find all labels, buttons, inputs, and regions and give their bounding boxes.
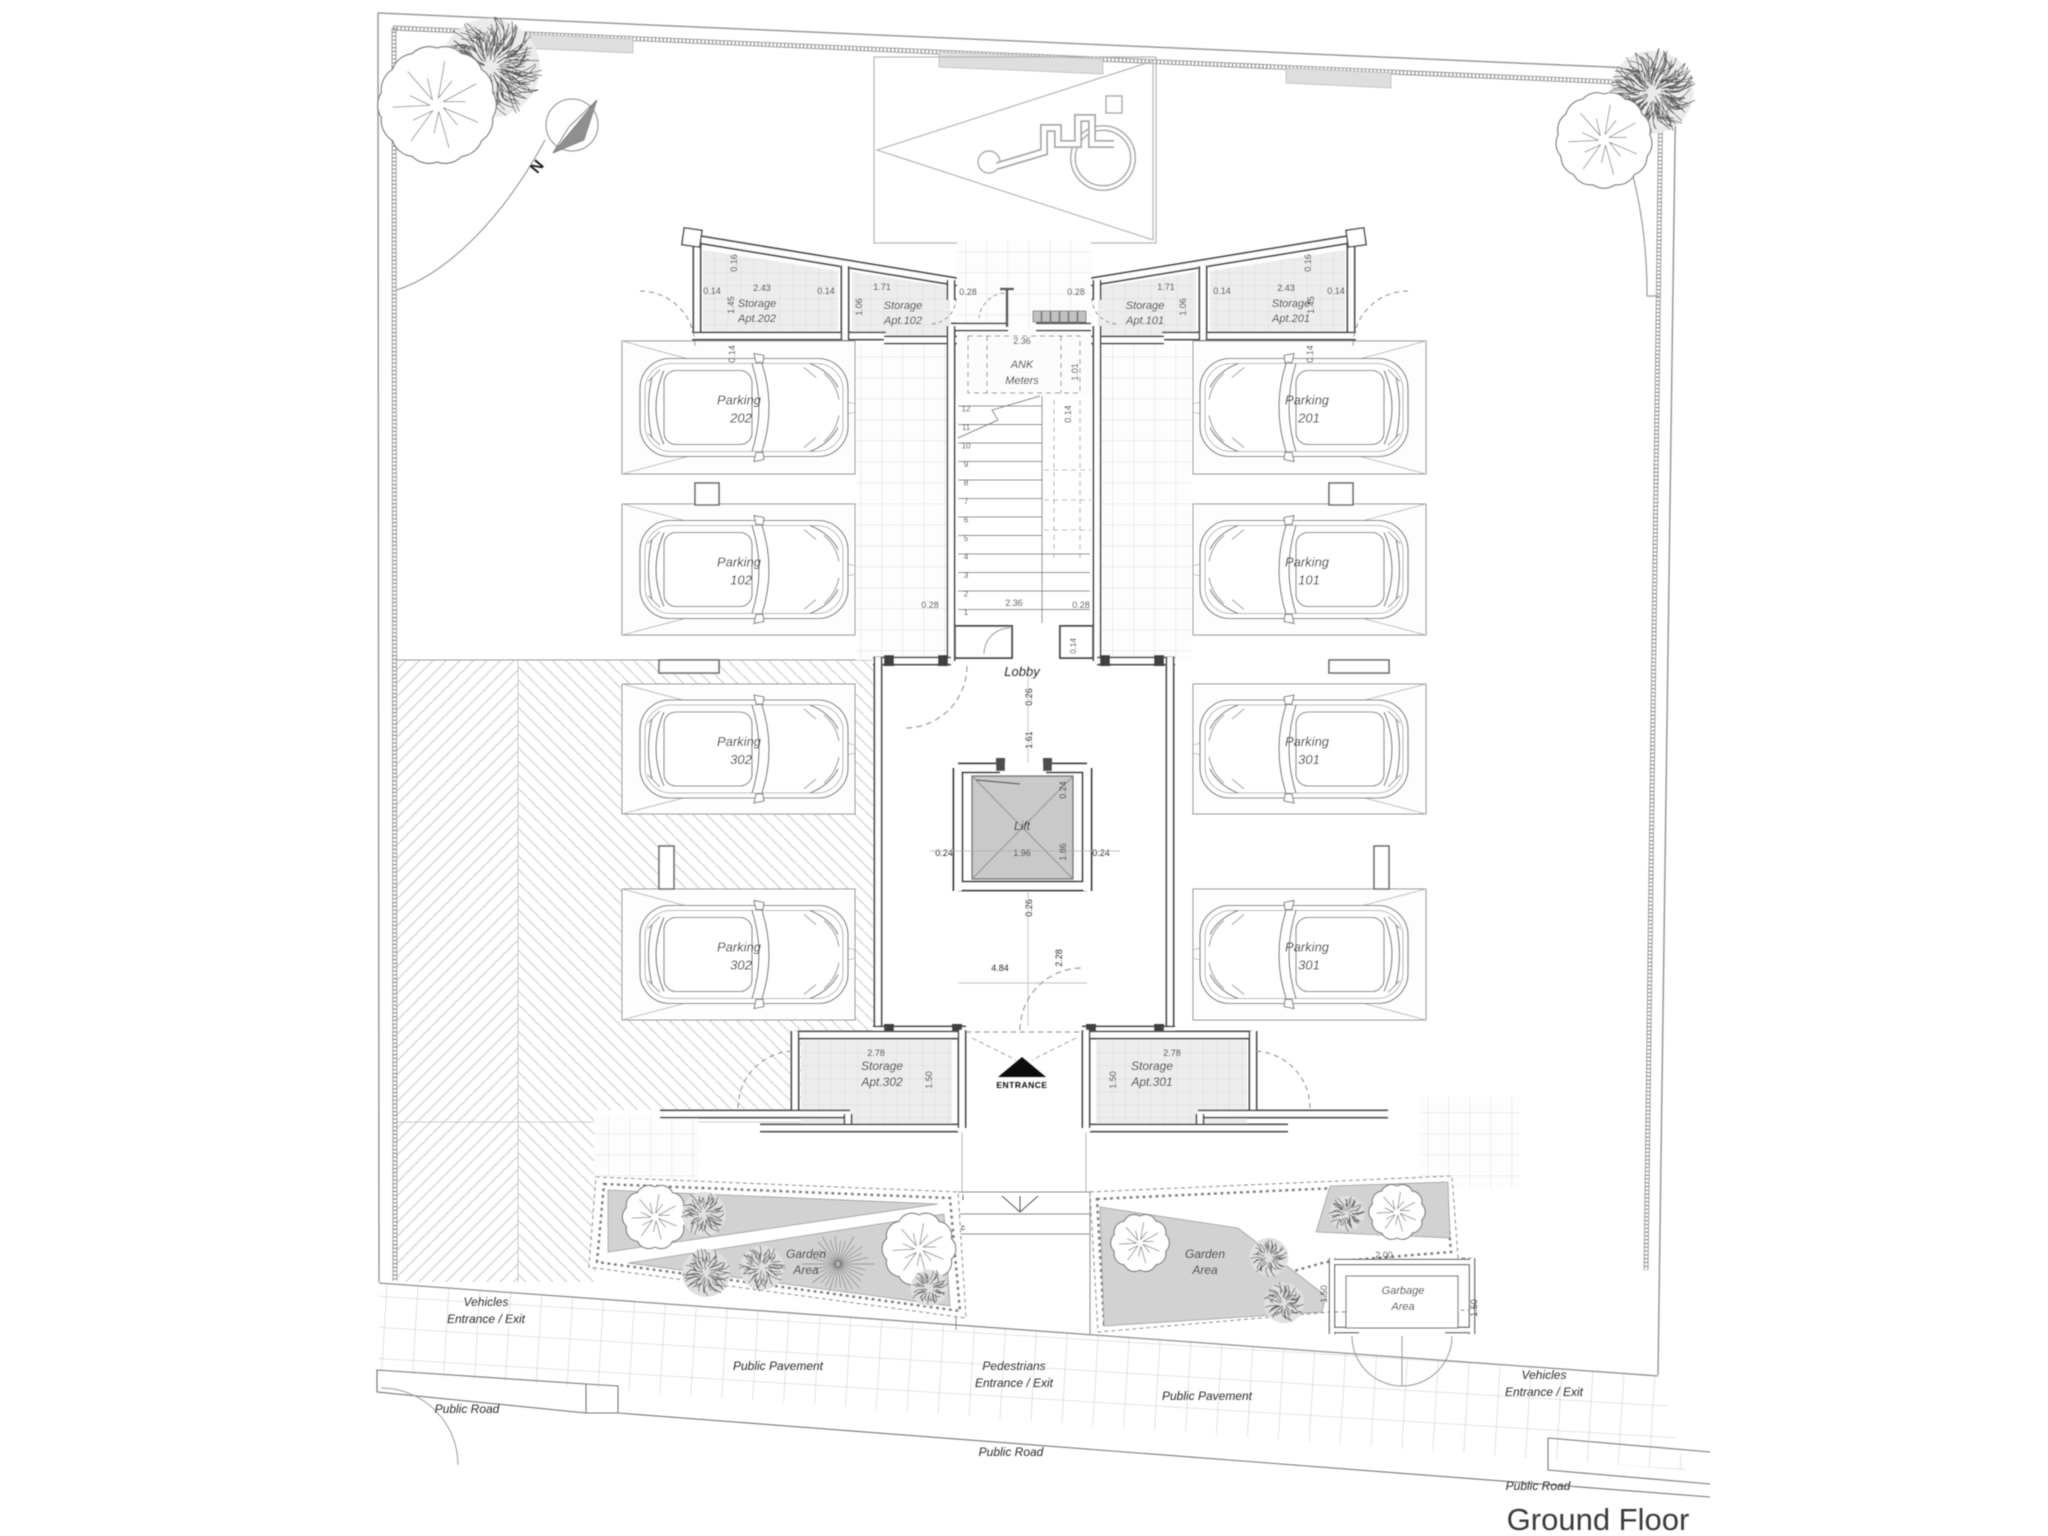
- svg-text:Garbage: Garbage: [1382, 1285, 1425, 1297]
- svg-text:0.16: 0.16: [1303, 254, 1313, 272]
- svg-text:7: 7: [964, 497, 969, 506]
- svg-text:Public Road: Public Road: [979, 1445, 1044, 1459]
- svg-text:0.14: 0.14: [727, 345, 737, 363]
- svg-text:5: 5: [964, 534, 969, 543]
- svg-text:1.45: 1.45: [726, 296, 736, 314]
- svg-text:202: 202: [729, 411, 752, 426]
- svg-text:Entrance / Exit: Entrance / Exit: [447, 1312, 526, 1326]
- svg-text:0.14: 0.14: [1327, 286, 1345, 296]
- svg-text:1.61: 1.61: [1024, 731, 1034, 749]
- svg-text:Storage: Storage: [1272, 298, 1311, 310]
- svg-text:301: 301: [1298, 752, 1320, 767]
- svg-text:Pedestrians: Pedestrians: [982, 1359, 1045, 1373]
- svg-text:Public Pavement: Public Pavement: [1162, 1389, 1253, 1403]
- svg-text:1.50: 1.50: [1108, 1071, 1118, 1089]
- svg-text:Apt.102: Apt.102: [883, 315, 922, 327]
- svg-text:Meters: Meters: [1005, 375, 1039, 387]
- svg-text:Parking: Parking: [717, 940, 762, 955]
- svg-text:101: 101: [1298, 573, 1320, 588]
- svg-text:2.78: 2.78: [1163, 1048, 1181, 1058]
- svg-text:1.45: 1.45: [1306, 296, 1316, 314]
- svg-text:12: 12: [962, 405, 971, 414]
- svg-text:i: i: [962, 1193, 964, 1202]
- svg-text:Parking: Parking: [717, 393, 762, 408]
- svg-text:0.24: 0.24: [935, 848, 953, 858]
- svg-text:1: 1: [964, 608, 969, 617]
- svg-text:102: 102: [730, 573, 752, 588]
- svg-text:0.24: 0.24: [1058, 781, 1068, 799]
- svg-text:Parking: Parking: [1285, 555, 1330, 570]
- svg-text:Vehicles: Vehicles: [1522, 1368, 1567, 1382]
- svg-text:Apt.301: Apt.301: [1130, 1075, 1172, 1089]
- svg-text:0.16: 0.16: [729, 254, 739, 272]
- svg-text:302: 302: [730, 752, 752, 767]
- svg-text:0.26: 0.26: [1024, 688, 1034, 706]
- svg-text:Lobby: Lobby: [1004, 664, 1041, 679]
- svg-text:11: 11: [962, 423, 971, 432]
- svg-text:0.14: 0.14: [1063, 405, 1073, 423]
- svg-text:0.14: 0.14: [703, 286, 721, 296]
- svg-text:301: 301: [1298, 958, 1320, 973]
- svg-text:0.14: 0.14: [817, 286, 835, 296]
- svg-text:Garden: Garden: [1185, 1247, 1225, 1261]
- svg-text:Storage: Storage: [738, 298, 777, 310]
- svg-text:Storage: Storage: [861, 1059, 903, 1073]
- svg-text:0.14: 0.14: [1069, 638, 1078, 654]
- svg-text:2.36: 2.36: [1005, 598, 1023, 608]
- svg-text:201: 201: [1297, 411, 1320, 426]
- svg-text:Parking: Parking: [1285, 940, 1330, 955]
- svg-text:1.86: 1.86: [1058, 843, 1068, 861]
- svg-text:2.36: 2.36: [1013, 336, 1031, 346]
- svg-text:Storage: Storage: [884, 300, 923, 312]
- svg-text:1.71: 1.71: [873, 282, 891, 292]
- svg-text:Entrance / Exit: Entrance / Exit: [1505, 1385, 1584, 1399]
- svg-text:Public Pavement: Public Pavement: [733, 1359, 824, 1373]
- svg-text:4: 4: [964, 553, 969, 562]
- svg-text:Apt.302: Apt.302: [860, 1075, 903, 1089]
- svg-text:4.84: 4.84: [991, 963, 1009, 973]
- svg-text:Area: Area: [1191, 1263, 1218, 1277]
- svg-text:1.06: 1.06: [1178, 298, 1188, 316]
- svg-text:Apt.101: Apt.101: [1125, 315, 1164, 327]
- svg-text:2.43: 2.43: [753, 283, 771, 293]
- svg-text:1.01: 1.01: [1070, 363, 1080, 381]
- svg-text:0.24: 0.24: [1092, 848, 1110, 858]
- svg-text:8: 8: [964, 479, 969, 488]
- svg-text:0.28: 0.28: [959, 287, 977, 297]
- svg-text:0.28: 0.28: [1072, 600, 1090, 610]
- svg-text:Parking: Parking: [1285, 393, 1330, 408]
- svg-text:1.06: 1.06: [854, 298, 864, 316]
- svg-text:ENTRANCE: ENTRANCE: [996, 1080, 1047, 1090]
- svg-text:302: 302: [730, 958, 752, 973]
- svg-text:0.14: 0.14: [1213, 286, 1231, 296]
- svg-text:Lift: Lift: [1014, 819, 1031, 833]
- svg-text:Storage: Storage: [1131, 1059, 1173, 1073]
- svg-text:Public Road: Public Road: [1506, 1479, 1571, 1493]
- svg-text:10: 10: [962, 442, 971, 451]
- svg-text:2.28: 2.28: [1054, 949, 1064, 967]
- svg-text:2.00: 2.00: [1375, 1250, 1393, 1260]
- svg-text:Area: Area: [792, 1263, 819, 1277]
- svg-text:Vehicles: Vehicles: [464, 1295, 509, 1309]
- svg-text:1.50: 1.50: [924, 1071, 934, 1089]
- svg-text:Parking: Parking: [1285, 734, 1330, 749]
- svg-text:ANK: ANK: [1010, 359, 1034, 371]
- svg-text:Parking: Parking: [717, 555, 762, 570]
- svg-text:2.78: 2.78: [867, 1048, 885, 1058]
- svg-text:Parking: Parking: [717, 734, 762, 749]
- svg-text:Ground Floor: Ground Floor: [1507, 1502, 1690, 1536]
- svg-text:1.71: 1.71: [1157, 282, 1175, 292]
- svg-text:2: 2: [964, 590, 969, 599]
- svg-text:Storage: Storage: [1126, 300, 1165, 312]
- svg-text:6: 6: [964, 516, 969, 525]
- svg-text:Apt.201: Apt.201: [1271, 313, 1310, 325]
- svg-text:Area: Area: [1390, 1301, 1414, 1313]
- svg-text:1.96: 1.96: [1013, 848, 1031, 858]
- svg-text:0.14: 0.14: [1305, 345, 1315, 363]
- svg-text:Apt.202: Apt.202: [737, 313, 776, 325]
- svg-text:3: 3: [964, 571, 969, 580]
- svg-text:0.26: 0.26: [1024, 899, 1034, 917]
- svg-text:0.28: 0.28: [921, 600, 939, 610]
- svg-text:2.43: 2.43: [1277, 283, 1295, 293]
- svg-text:Garden: Garden: [786, 1247, 826, 1261]
- svg-text:1.50: 1.50: [1469, 1299, 1479, 1317]
- svg-text:Entrance / Exit: Entrance / Exit: [975, 1376, 1054, 1390]
- svg-text:9: 9: [964, 460, 969, 469]
- svg-text:c: c: [961, 1223, 965, 1232]
- svg-text:Public Road: Public Road: [435, 1402, 500, 1416]
- svg-text:1.50: 1.50: [1319, 1285, 1329, 1303]
- svg-text:0.28: 0.28: [1067, 287, 1085, 297]
